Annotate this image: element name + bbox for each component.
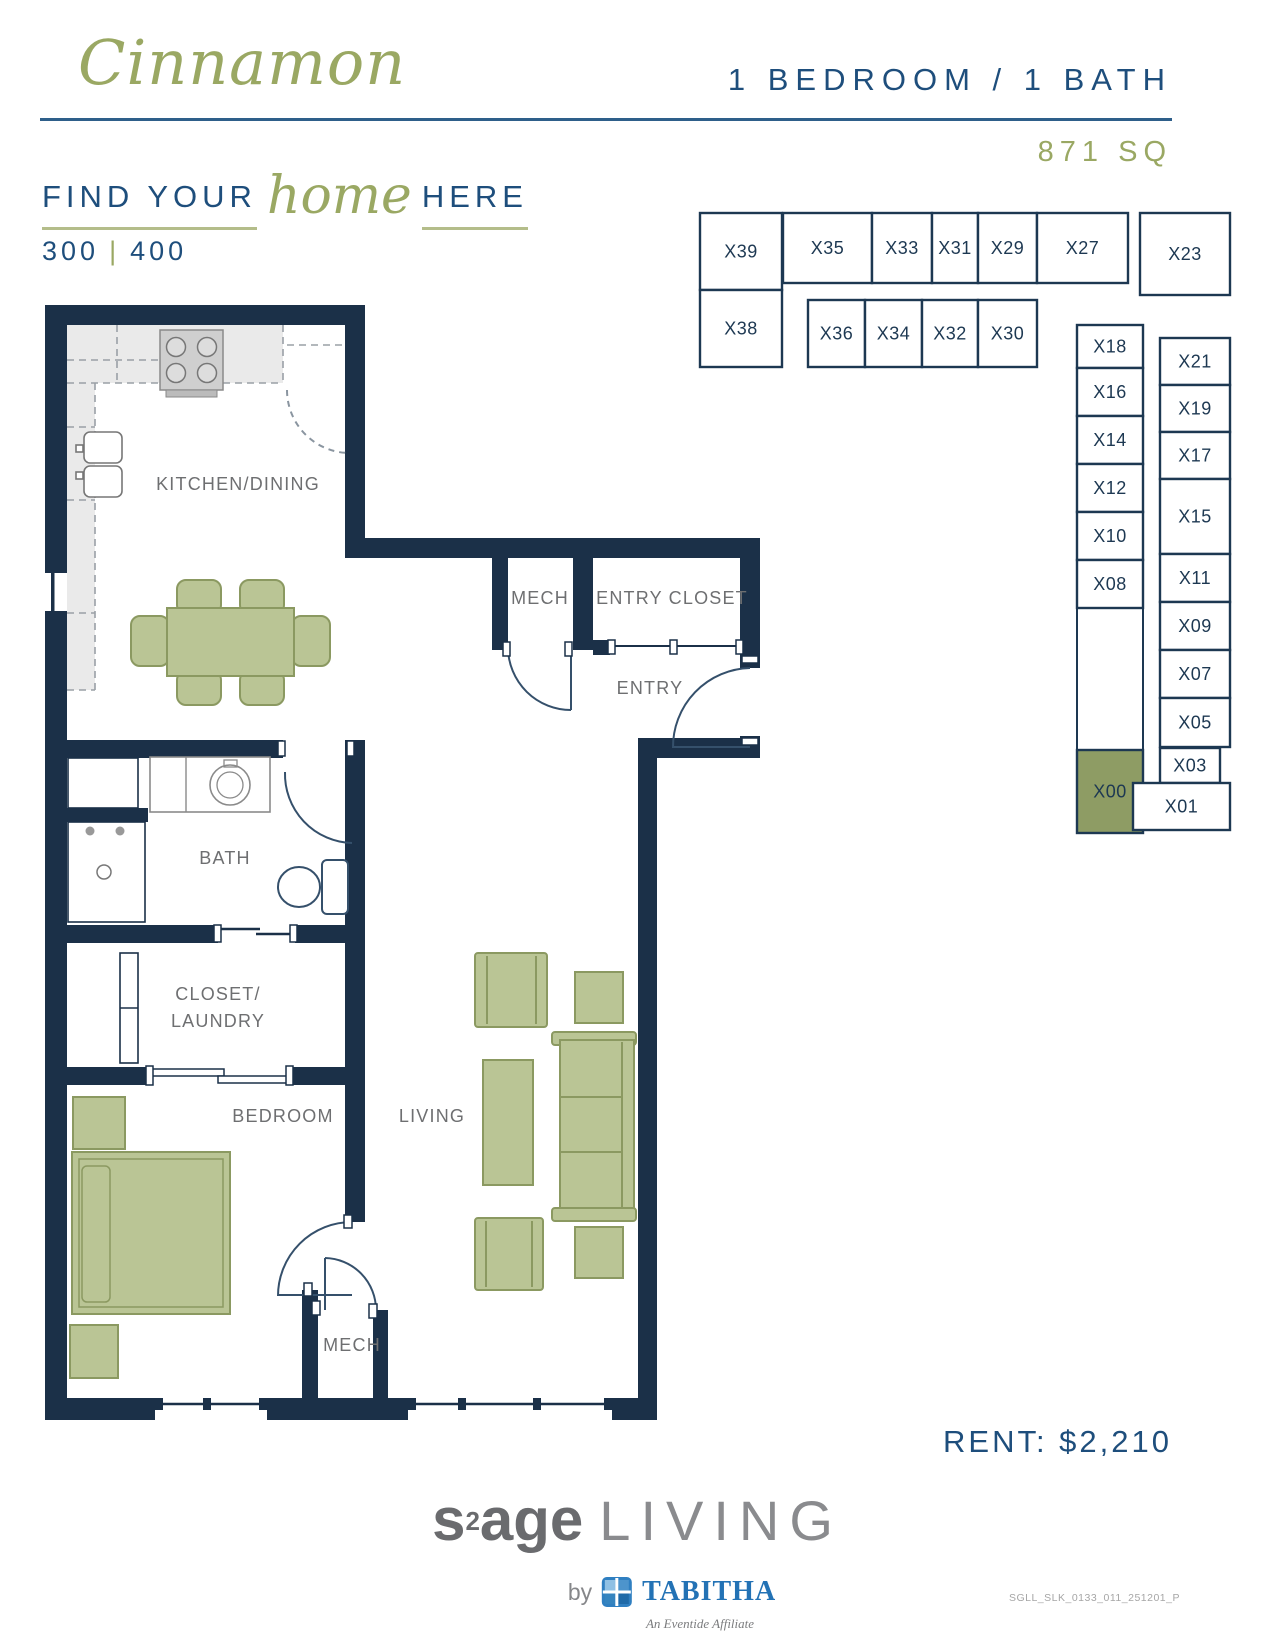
unit-label-X03: X03 xyxy=(1173,756,1207,776)
tagline: FIND YOUR home HERE xyxy=(42,160,528,230)
side-table xyxy=(575,972,623,1023)
brand-logo: s2ageLIVING xyxy=(0,1485,1275,1554)
unit-label-X00: X00 xyxy=(1093,782,1127,802)
unit-label-X18: X18 xyxy=(1093,337,1127,357)
brand-s: s xyxy=(432,1486,465,1553)
bed-icon xyxy=(72,1152,230,1314)
room-label: ENTRY xyxy=(617,678,684,698)
unit-label-X27: X27 xyxy=(1066,238,1100,258)
unit-label-X09: X09 xyxy=(1178,616,1212,636)
unit-label-X10: X10 xyxy=(1093,526,1127,546)
unit-label-X35: X35 xyxy=(811,238,845,258)
unit-label-X29: X29 xyxy=(991,238,1025,258)
mech-door-arc xyxy=(508,648,571,710)
entry-door-arc xyxy=(673,668,750,748)
mech2-door-arc xyxy=(325,1258,376,1310)
unit-label-X16: X16 xyxy=(1093,382,1127,402)
unit-label-X17: X17 xyxy=(1178,446,1212,466)
unit-label-X07: X07 xyxy=(1178,664,1212,684)
bath-fixtures xyxy=(68,757,348,922)
room-label: BEDROOM xyxy=(232,1106,333,1126)
coffee-table xyxy=(483,1060,533,1185)
tagline-script: home xyxy=(267,166,412,226)
toilet-icon xyxy=(278,867,320,907)
shower-head-icon xyxy=(86,827,95,836)
tagline-post: HERE xyxy=(422,179,528,230)
floor-plan: KITCHEN/DININGMECHENTRY CLOSETENTRYBATHC… xyxy=(30,290,770,1430)
sofa-armrest xyxy=(552,1208,636,1221)
tabitha-logo-icon xyxy=(601,1576,633,1608)
unit-label-X36: X36 xyxy=(820,324,854,344)
affiliate-text: An Eventide Affiliate xyxy=(646,1616,754,1632)
left-window xyxy=(45,566,67,618)
unit-label-X31: X31 xyxy=(938,238,972,258)
room-label: CLOSET/ xyxy=(175,984,260,1004)
linen-closet xyxy=(68,758,138,808)
byline: by TABITHA xyxy=(568,1576,776,1608)
stove-icon xyxy=(160,330,223,397)
room-label: LAUNDRY xyxy=(171,1011,265,1031)
side-table xyxy=(575,1227,623,1278)
room-label: LIVING xyxy=(399,1106,465,1126)
unit-label-X30: X30 xyxy=(991,324,1025,344)
room-label: MECH xyxy=(511,588,569,608)
floor-numbers: 300|400 xyxy=(42,236,187,267)
square-footage: 871 SQ xyxy=(1038,136,1172,169)
unit-label-X34: X34 xyxy=(877,324,911,344)
unit-label-X32: X32 xyxy=(933,324,967,344)
unit-label-X15: X15 xyxy=(1178,507,1212,527)
floor-right: 400 xyxy=(130,236,187,266)
by-label: by xyxy=(568,1579,592,1606)
unit-label-X39: X39 xyxy=(724,242,758,262)
partner-name: TABITHA xyxy=(642,1576,776,1608)
bedroom-furniture xyxy=(70,1097,230,1378)
unit-boxes: X39X38X35X33X31X29X27X23X36X34X32X30X18X… xyxy=(700,213,1230,833)
bath-door-arc xyxy=(285,772,352,843)
room-label: ENTRY CLOSET xyxy=(596,588,748,608)
unit-label-X23: X23 xyxy=(1168,244,1202,264)
floor-separator: | xyxy=(99,236,130,266)
tagline-pre: FIND YOUR xyxy=(42,179,257,230)
header-divider xyxy=(40,118,1172,121)
unit-label-X11: X11 xyxy=(1179,568,1211,588)
unit-label-X05: X05 xyxy=(1178,713,1212,733)
unit-label-X01: X01 xyxy=(1165,797,1199,817)
shower-head-icon xyxy=(116,827,125,836)
corridor-lines xyxy=(1077,608,1143,750)
bedroom-door-arc xyxy=(278,1222,352,1296)
floor-left: 300 xyxy=(42,236,99,266)
dining-set xyxy=(131,580,330,705)
nightstand xyxy=(73,1097,125,1149)
nightstand xyxy=(70,1325,118,1378)
rent-price: RENT: $2,210 xyxy=(943,1424,1172,1460)
pantry-door-arc xyxy=(287,390,350,453)
room-label: MECH xyxy=(323,1335,381,1355)
bed-bath-spec: 1 BEDROOM / 1 BATH xyxy=(728,62,1172,98)
room-label: KITCHEN/DINING xyxy=(156,474,320,494)
brand-age: age xyxy=(480,1486,583,1553)
shower xyxy=(68,822,145,922)
unit-label-X21: X21 xyxy=(1178,352,1212,372)
unit-label-X12: X12 xyxy=(1093,478,1127,498)
document-code: SGLL_SLK_0133_011_251201_P xyxy=(1009,1592,1180,1604)
room-label: BATH xyxy=(199,848,250,868)
brand-living: LIVING xyxy=(599,1489,843,1552)
toilet-tank xyxy=(322,860,348,914)
unit-label-X33: X33 xyxy=(885,238,919,258)
plan-name: Cinnamon xyxy=(78,26,406,99)
living-furniture xyxy=(475,953,636,1290)
unit-label-X14: X14 xyxy=(1093,430,1127,450)
unit-label-X08: X08 xyxy=(1093,574,1127,594)
brand-sup: 2 xyxy=(465,1506,479,1536)
unit-label-X19: X19 xyxy=(1178,399,1212,419)
laundry-divider xyxy=(120,953,138,1063)
